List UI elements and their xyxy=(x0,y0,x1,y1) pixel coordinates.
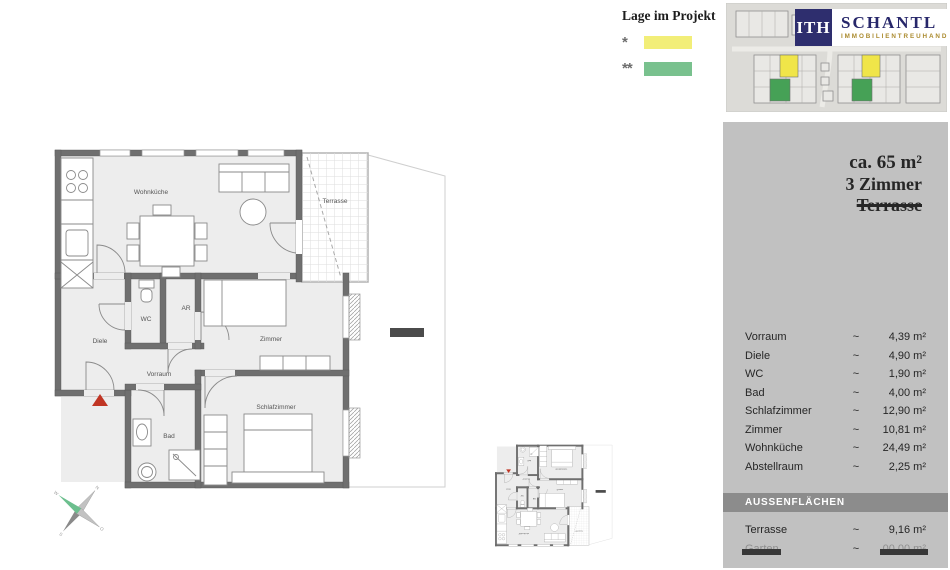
compass-icon: N O S W xyxy=(48,476,110,546)
exterior-window-boxes xyxy=(349,294,360,458)
room-label-vorraum: Vorraum xyxy=(147,371,172,378)
row-label: Schlafzimmer xyxy=(745,405,846,417)
compass-e: O xyxy=(99,526,105,532)
legend-symbol: * xyxy=(622,34,644,51)
room-label-wohnkueche: Wohnküche xyxy=(134,189,169,196)
wardrobe xyxy=(204,415,227,485)
room-label-zimmer: Zimmer xyxy=(260,336,283,343)
row-value: 12,90 m² xyxy=(866,405,926,417)
row-approx: ~ xyxy=(846,350,866,362)
row-label: Diele xyxy=(745,350,846,362)
row-approx: ~ xyxy=(846,405,866,417)
row-approx: ~ xyxy=(846,424,866,436)
logo-name: SCHANTL xyxy=(841,13,948,32)
outdoor-areas-header: AUSSENFLÄCHEN xyxy=(723,493,948,512)
round-table xyxy=(240,199,266,225)
kitchen-counter xyxy=(61,158,93,288)
row-approx: ~ xyxy=(846,524,866,536)
washbasin-icon xyxy=(133,419,151,446)
table-row: Bad ~ 4,00 m² xyxy=(723,384,948,403)
compass-s: S xyxy=(58,531,63,537)
row-approx: ~ xyxy=(846,442,866,454)
room-label-diele: Diele xyxy=(93,338,108,345)
row-value: 10,81 m² xyxy=(866,424,926,436)
row-value: 2,25 m² xyxy=(866,461,926,473)
room-label-wc: WC xyxy=(141,316,152,323)
logo-subtitle: IMMOBILIENTREUHAND xyxy=(841,33,948,40)
table-row-redacted: Garten ~ 00,00 m² xyxy=(723,540,948,560)
legend-swatch-green xyxy=(644,62,692,76)
table-row: Vorraum ~ 4,39 m² xyxy=(723,328,948,347)
company-logo: ITH SCHANTL IMMOBILIENTREUHAND xyxy=(795,9,950,46)
row-value: 4,90 m² xyxy=(866,350,926,362)
sofa xyxy=(219,164,289,192)
row-label-redacted: Garten xyxy=(745,543,779,555)
legend-swatch-yellow xyxy=(644,36,692,49)
room-label-terrasse: Terrasse xyxy=(323,198,348,205)
row-approx: ~ xyxy=(846,461,866,473)
legend-item: ** xyxy=(622,61,718,76)
table-row: WC ~ 1,90 m² xyxy=(723,365,948,384)
row-approx: ~ xyxy=(846,368,866,380)
row-label: WC xyxy=(745,368,846,380)
summary-rooms: 3 Zimmer xyxy=(723,174,922,195)
legend-title: Lage im Projekt xyxy=(622,8,718,24)
row-value: 4,00 m² xyxy=(866,387,926,399)
washing-machine-icon xyxy=(138,463,156,481)
room-label-schlafzimmer: Schlafzimmer xyxy=(256,404,296,411)
apartment-summary: ca. 65 m² 3 Zimmer Terrasse xyxy=(723,122,948,216)
compass-w: W xyxy=(53,490,60,497)
room-label-ar: AR xyxy=(181,305,190,312)
row-label: Abstellraum xyxy=(745,461,846,473)
table-row: Schlafzimmer ~ 12,90 m² xyxy=(723,402,948,421)
legend-symbol: ** xyxy=(622,60,644,77)
dresser xyxy=(260,356,330,370)
row-label: Zimmer xyxy=(745,424,846,436)
redacted-bar xyxy=(390,328,424,337)
row-value: 9,16 m² xyxy=(866,524,926,536)
floor-plan: Terrasse xyxy=(38,128,458,503)
row-value-redacted: 00,00 m² xyxy=(883,543,926,555)
row-label: Terrasse xyxy=(745,524,846,536)
room-area-table: Vorraum ~ 4,39 m² Diele ~ 4,90 m² WC ~ 1… xyxy=(723,328,948,476)
terrace-area: Terrasse xyxy=(302,153,368,282)
info-panel: ca. 65 m² 3 Zimmer Terrasse Vorraum ~ 4,… xyxy=(723,122,948,568)
row-approx: ~ xyxy=(846,331,866,343)
row-value: 4,39 m² xyxy=(866,331,926,343)
table-row: Zimmer ~ 10,81 m² xyxy=(723,421,948,440)
room-label-bad: Bad xyxy=(163,433,175,440)
floor-plan-thumbnail xyxy=(490,440,616,553)
logo-monogram: ITH xyxy=(795,9,832,46)
page: Terrasse xyxy=(0,0,950,570)
summary-terrace-struck: Terrasse xyxy=(723,195,922,216)
outdoor-areas-table: Terrasse ~ 9,16 m² Garten ~ 00,00 m² xyxy=(723,520,948,559)
summary-area: ca. 65 m² xyxy=(723,152,922,174)
row-label: Bad xyxy=(745,387,846,399)
table-row: Terrasse ~ 9,16 m² xyxy=(723,520,948,540)
row-approx: ~ xyxy=(846,387,866,399)
row-value: 24,49 m² xyxy=(866,442,926,454)
table-row: Wohnküche ~ 24,49 m² xyxy=(723,439,948,458)
legend-item: * xyxy=(622,35,718,50)
table-row: Abstellraum ~ 2,25 m² xyxy=(723,458,948,477)
toilet-icon xyxy=(139,280,154,302)
table-row: Diele ~ 4,90 m² xyxy=(723,347,948,366)
row-label: Wohnküche xyxy=(745,442,846,454)
row-approx: ~ xyxy=(846,543,866,555)
legend-lage-im-projekt: Lage im Projekt * ** xyxy=(622,8,718,76)
row-label: Vorraum xyxy=(745,331,846,343)
bed-schlafzimmer xyxy=(204,414,324,485)
row-value: 1,90 m² xyxy=(866,368,926,380)
compass-n: N xyxy=(94,485,100,491)
